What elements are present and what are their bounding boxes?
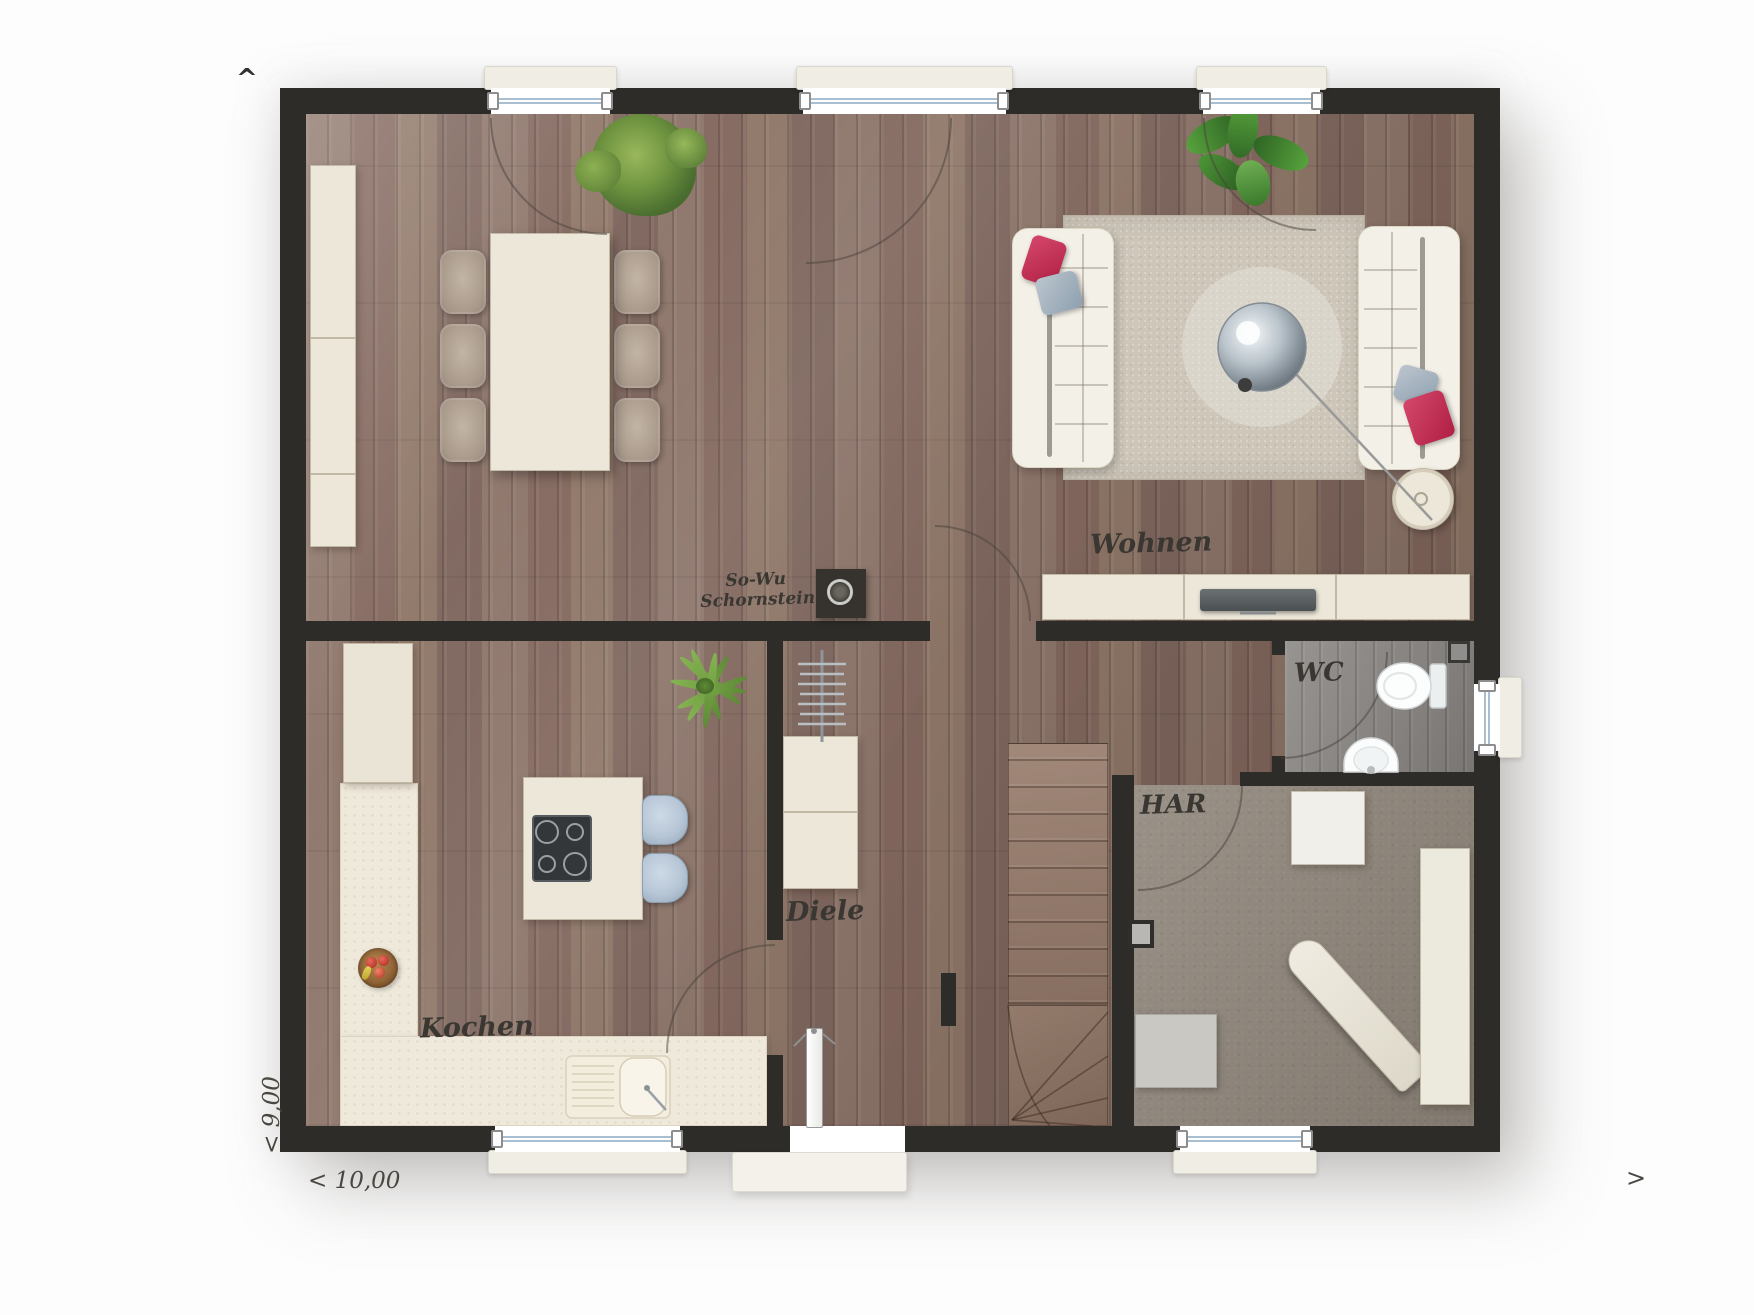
wall-wc-stub — [1272, 641, 1285, 655]
terrace-door-dining — [491, 88, 610, 114]
chimney-label-line2: Schornstein — [700, 588, 813, 612]
wall-top — [1006, 88, 1203, 114]
wall-bottom — [280, 1126, 495, 1152]
wall-wc-utility — [1240, 772, 1474, 786]
wall-top — [280, 88, 491, 114]
wall-kitchen-hall — [767, 641, 783, 940]
room-label-living: Wohnen — [1090, 526, 1213, 560]
kitchen-counter-left — [340, 783, 418, 1051]
dining-chair — [614, 324, 660, 388]
dining-chair — [614, 250, 660, 314]
window-kitchen — [495, 1126, 680, 1152]
entrance-porch — [732, 1152, 907, 1192]
sofa-seam — [1391, 232, 1393, 464]
window-cap — [1478, 680, 1496, 692]
window-sill — [488, 1150, 687, 1174]
bar-stool — [642, 853, 688, 903]
wall-interior-horizontal — [1036, 621, 1474, 641]
wall-hall-utility — [1112, 775, 1134, 1126]
window-sill — [1498, 677, 1522, 758]
sideboard-divider — [311, 337, 355, 339]
window-utility — [1180, 1126, 1310, 1152]
side-table — [1392, 468, 1454, 530]
sideboard-divider — [311, 473, 355, 475]
room-label-wc: WC — [1294, 657, 1345, 688]
wall-left — [280, 88, 306, 1152]
lowboard-divider — [1335, 575, 1337, 619]
window-sill — [1173, 1150, 1317, 1174]
dining-chair — [440, 398, 486, 462]
sofa-seam — [1082, 234, 1084, 462]
window-cap — [1311, 92, 1323, 110]
dimension-height: < 9,00 — [259, 1055, 285, 1175]
staircase-winders — [1008, 1005, 1108, 1126]
lowboard-divider — [1183, 575, 1185, 619]
window-cap — [491, 1130, 503, 1148]
utility-box — [1135, 1014, 1217, 1088]
bar-stool — [642, 795, 688, 845]
plant-dining-leaf — [575, 150, 621, 192]
fruit — [374, 967, 385, 978]
plant-kitchen-center — [696, 678, 714, 694]
window-cap — [997, 92, 1009, 110]
washing-machine — [1291, 791, 1365, 865]
kitchen-tall-cabinet — [343, 643, 413, 783]
entrance-opening — [790, 1126, 905, 1152]
chimney-label: So-Wu Schornstein — [699, 568, 812, 612]
cooktop — [532, 815, 592, 882]
wall-top — [610, 88, 803, 114]
wc-vent — [1448, 641, 1470, 663]
window-top-center — [803, 88, 1006, 114]
room-label-kitchen: Kochen — [420, 1011, 535, 1045]
floor-plan: Wohnen Kochen Diele WC HAR So-Wu Schorns… — [0, 0, 1754, 1315]
room-label-utility: HAR — [1140, 789, 1207, 821]
chimney-flue — [827, 579, 853, 605]
dining-table — [490, 233, 610, 471]
hall-wardrobe — [783, 736, 858, 889]
north-arrow-icon: ^ — [236, 64, 258, 94]
window-cap — [1478, 744, 1496, 756]
window-sill — [796, 66, 1013, 90]
wall-right-upper — [1474, 88, 1500, 684]
wall-bottom — [905, 1126, 1180, 1152]
wardrobe-divider — [784, 811, 857, 813]
wall-bottom — [680, 1126, 790, 1152]
wall-stair-stub — [941, 973, 956, 1026]
dimension-width: < 10,00 — [308, 1168, 400, 1194]
window-cap — [671, 1130, 683, 1148]
window-cap — [601, 92, 613, 110]
window-cap — [1199, 92, 1211, 110]
sofa-seat — [1364, 232, 1417, 464]
wall-right-lower — [1474, 751, 1500, 1152]
dimension-arrow-east: > — [1626, 1164, 1646, 1192]
wall-interior-horizontal — [306, 621, 930, 641]
window-wc — [1474, 684, 1500, 751]
tv — [1200, 589, 1316, 611]
window-cap — [1301, 1130, 1313, 1148]
wall-kitchen-hall — [767, 1055, 783, 1126]
dining-chair — [614, 398, 660, 462]
window-sill — [1196, 66, 1327, 90]
window-cap — [799, 92, 811, 110]
wall-top — [1320, 88, 1500, 114]
sofa-seat — [1055, 234, 1108, 462]
fruit — [378, 955, 389, 966]
chimney-block — [816, 569, 866, 618]
fruit-bowl — [358, 948, 398, 988]
room-label-hall: Diele — [786, 895, 865, 928]
light-switch — [1128, 920, 1154, 948]
window-cap — [487, 92, 499, 110]
staircase-flight — [1008, 743, 1108, 1005]
banana — [360, 965, 372, 981]
dining-chair — [440, 250, 486, 314]
entrance-door — [806, 1028, 823, 1128]
kitchen-counter-bottom — [340, 1036, 767, 1126]
plant-dining-leaf — [665, 128, 707, 168]
utility-cabinet — [1420, 848, 1470, 1105]
window-living — [1203, 88, 1320, 114]
sideboard — [310, 165, 356, 547]
window-cap — [1176, 1130, 1188, 1148]
window-sill — [484, 66, 617, 90]
wall-bottom — [1310, 1126, 1500, 1152]
wall-wc-stub — [1272, 756, 1285, 772]
dining-chair — [440, 324, 486, 388]
